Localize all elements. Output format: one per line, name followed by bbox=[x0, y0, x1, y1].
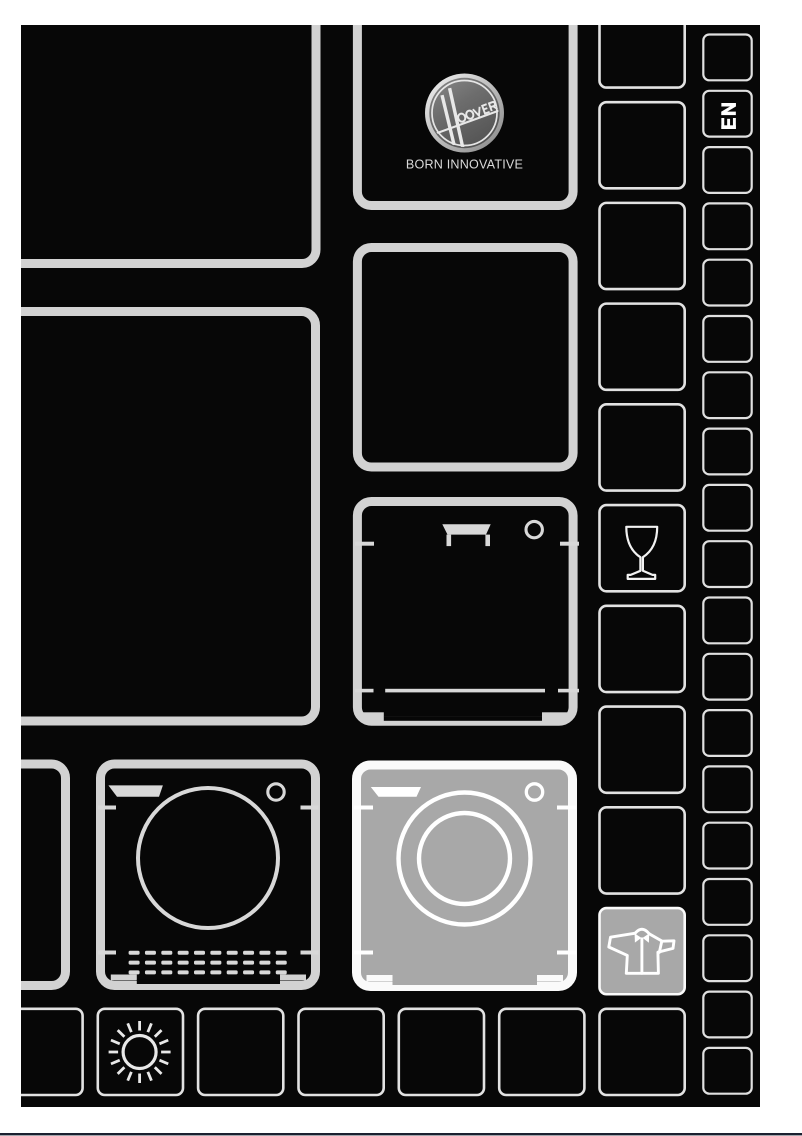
svg-text:BORN INNOVATIVE: BORN INNOVATIVE bbox=[406, 158, 523, 172]
